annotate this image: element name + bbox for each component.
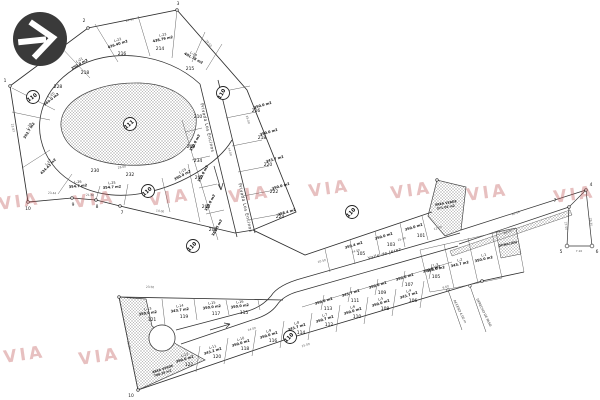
lot-address-label: 105 <box>432 274 441 280</box>
watermark-text: VIA <box>77 344 121 370</box>
lot-address-label: 224 <box>276 214 285 220</box>
lot-address-label: 230 <box>91 168 100 174</box>
lot-address-label: 215 <box>186 66 195 72</box>
boundary-vertex-label: 5 <box>560 249 563 255</box>
dimension-label: 29.30 <box>589 218 594 227</box>
lot-area-label: 350.0 m2 <box>202 304 221 311</box>
lot-address-label: 207 <box>195 175 204 181</box>
dimension-label: 28.00 <box>117 164 126 169</box>
lot-address-label: 220 <box>264 162 273 168</box>
lot-area-label: 350.0 m2 <box>426 265 445 273</box>
watermark-text: VIA <box>307 176 351 202</box>
watermark-text: VIA <box>227 182 271 208</box>
lot-address-label: 113 <box>324 306 333 312</box>
dimension-label: 14.00 <box>247 326 256 332</box>
lot-area-label: 350.0 m2 <box>230 303 249 310</box>
lot-address-label: 117 <box>212 311 221 317</box>
lot-address-label: 214 <box>156 46 165 52</box>
lot-address-label: 106 <box>409 298 418 304</box>
boundary-vertex-label: 1 <box>4 78 7 84</box>
boundary-vertex-label: 2 <box>83 18 86 24</box>
lot-address-label: 121 <box>148 317 157 323</box>
boundary-vertex-label: 9 <box>72 202 75 208</box>
lot-address-label: 115 <box>240 310 249 316</box>
lot-address-label: 120 <box>213 354 222 360</box>
boundary-vertex-label: 3 <box>177 1 180 7</box>
lot-area-label: 350.0 m2 <box>395 272 414 281</box>
watermark-text: VIA <box>389 178 433 204</box>
logo <box>13 12 67 66</box>
lot-area-label: 343.7 m2 <box>341 288 360 297</box>
lot-address-label: 110 <box>353 314 362 320</box>
block-marker-110: 110 <box>26 91 39 104</box>
watermark-text: VIA <box>465 180 509 206</box>
lot-address-label: 107 <box>405 282 414 288</box>
watermark-text: VIA <box>0 189 41 215</box>
block-marker-110: 110 <box>283 331 296 345</box>
block-marker-110: 110 <box>186 240 199 254</box>
lot-address-label: 216 <box>252 108 261 114</box>
dimension-label: 23.44 <box>48 191 57 196</box>
street-name-label: Privada Los Encinos <box>198 103 215 154</box>
dimension-label: 85.10 <box>511 210 520 217</box>
leader-note-label: ACCESO 4.00 m <box>453 299 468 324</box>
block-marker-110: 110 <box>217 87 230 101</box>
lot-area-label: 343.7 m2 <box>170 307 189 314</box>
watermark-text: VIA <box>2 342 46 368</box>
lot-address-label: 209 <box>187 144 196 150</box>
lot-area-label: 343.7 m2 <box>450 260 469 268</box>
boundary-vertex-label: 7 <box>554 198 557 204</box>
dimension-label: 25.00 <box>245 115 251 124</box>
lot-address-label: 228 <box>54 84 63 90</box>
lower-section-boundary <box>119 272 524 390</box>
dimension-label: 23.50 <box>146 285 155 289</box>
block-marker-110: 110 <box>345 206 358 220</box>
leader-note-label: DERECHO DE PASO <box>475 298 492 328</box>
lot-area-label: 438.79 m2 <box>152 35 174 43</box>
watermark-layer: VIAVIAVIAVIAVIAVIAVIAVIAVIAVIA <box>0 176 596 370</box>
lot-address-label: 109 <box>378 290 387 296</box>
boundary-vertex-label: 10 <box>25 206 31 212</box>
lot-address-label: 218 <box>81 70 90 76</box>
lot-address-label: 216 <box>118 51 127 57</box>
street-name-label: Valle de Jerez <box>367 246 402 261</box>
watermark-text: VIA <box>72 187 116 213</box>
boundary-vertex-label: 4 <box>590 182 593 188</box>
lot-address-label: 111 <box>351 298 360 304</box>
lot-address-label: 118 <box>241 346 250 352</box>
dimension-label: 24.30 <box>125 17 134 23</box>
lot-area-label: 350.0 m2 <box>368 280 387 289</box>
lot-area-label: 354.7 m2 <box>103 185 122 190</box>
dimension-label: 7.10 <box>576 249 583 253</box>
lot-address-label: 234 <box>194 158 203 164</box>
dimension-label: 14.00 <box>227 147 233 156</box>
lot-address-label: 222 <box>270 189 279 195</box>
street-arrow-2 <box>210 323 230 330</box>
dimension-label: 10.50 <box>317 258 326 264</box>
lot-address-label: 114 <box>297 330 306 336</box>
lot-area-label: 350.0 m2 <box>314 296 333 305</box>
dimension-label: 14.00 <box>156 208 165 213</box>
lot-address-label: 101 <box>417 233 426 239</box>
lot-area-label: 350.0 m2 <box>404 222 423 231</box>
dimension-label: 27.50 <box>564 222 569 231</box>
lot-address-label: 210 <box>194 114 203 120</box>
boundary-vertex-label: 10 <box>128 393 134 399</box>
lot-address-label: 112 <box>325 322 334 328</box>
lot-address-label: 122 <box>185 362 194 368</box>
dimension-label: 25.00 <box>397 236 406 242</box>
block-marker-110: 110 <box>141 185 154 198</box>
plat-map: VIAVIAVIAVIAVIAVIAVIAVIAVIAVIA Privada L… <box>0 0 600 400</box>
lot-address-label: 203 <box>209 227 218 233</box>
street-arrow <box>214 166 223 190</box>
lot-address-label: 116 <box>269 338 278 344</box>
boundary-vertex-label: 8 <box>96 204 99 210</box>
lot-address-label: 119 <box>180 314 189 320</box>
boundary-vertex-label: 7 <box>121 210 124 216</box>
lot-address-label: 205 <box>202 204 211 210</box>
island-marker-111: 111 <box>123 118 136 131</box>
lot-address-label: 103 <box>387 242 396 248</box>
boundary-vertex-label: 6 <box>596 249 599 255</box>
dimension-label: 25.00 <box>301 342 310 348</box>
lot-area-label: 350.0 m2 <box>474 255 493 263</box>
lot-address-label: 232 <box>126 172 135 178</box>
dimension-label: 22.87 <box>10 123 15 132</box>
plat-document: VIAVIAVIAVIAVIAVIAVIAVIAVIAVIA Privada L… <box>0 0 600 400</box>
lot-area-label: 350.0 m2 <box>374 231 393 240</box>
lot-address-label: 218 <box>258 135 267 141</box>
dimension-label: 21.60 <box>86 193 95 198</box>
lot-address-label: 108 <box>381 306 390 312</box>
dimension-label: 31.20 <box>126 340 132 349</box>
